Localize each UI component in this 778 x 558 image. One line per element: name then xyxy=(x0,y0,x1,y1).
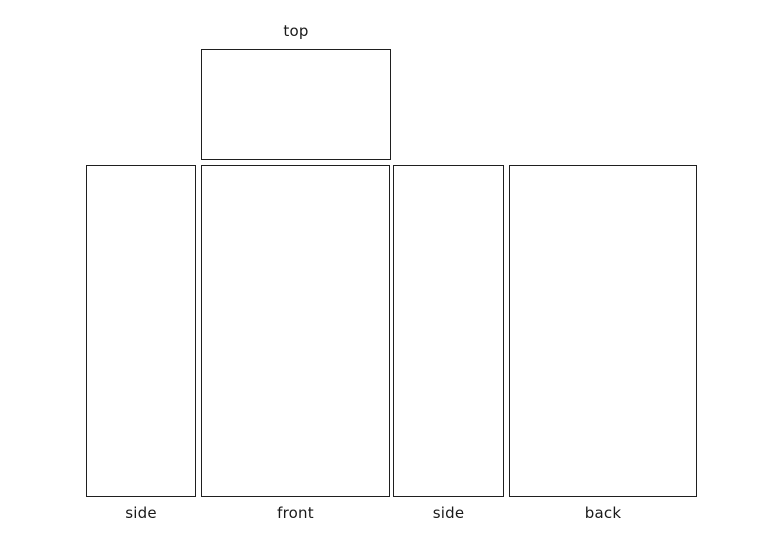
panel-label-front: front xyxy=(201,503,390,523)
panel-back-face xyxy=(509,165,697,497)
panel-top-face xyxy=(201,49,391,160)
panel-label-side-left: side xyxy=(86,503,196,523)
panel-label-top: top xyxy=(201,21,391,41)
panel-side-left-face xyxy=(86,165,196,497)
panel-label-back: back xyxy=(509,503,697,523)
panel-side-right-face xyxy=(393,165,504,497)
panel-label-side-right: side xyxy=(393,503,504,523)
box-net-diagram: top side front side back xyxy=(0,0,778,558)
panel-front-face xyxy=(201,165,390,497)
